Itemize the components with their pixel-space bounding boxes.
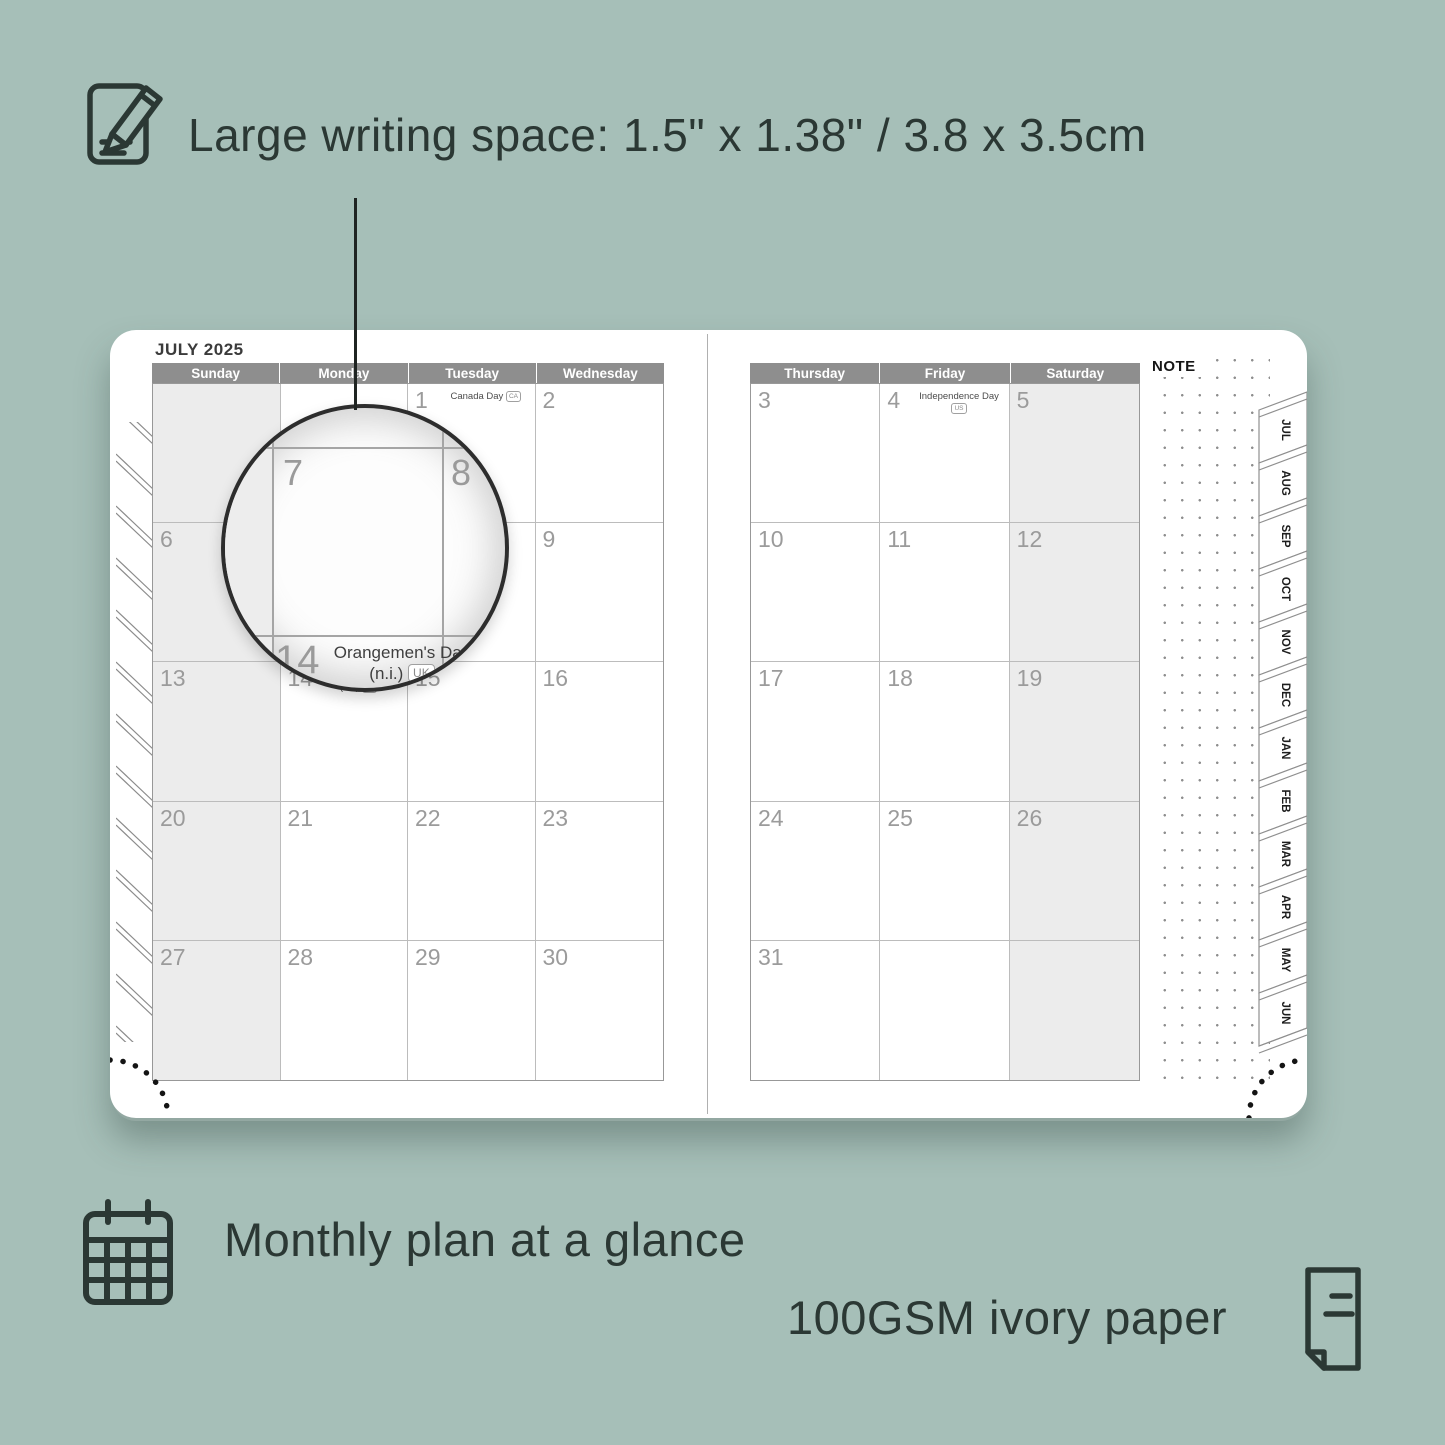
magnifier-circle: 7 8 14 Orangemen's Day (n.i.) UK	[221, 404, 509, 692]
paper-sheet-icon	[1272, 1262, 1372, 1378]
magnified-date: 8	[451, 452, 471, 494]
pencil-notepad-icon	[80, 72, 180, 172]
magnified-holiday-label: Orangemen's Day (n.i.) UK	[317, 642, 487, 685]
writing-space-caption: Large writing space: 1.5" x 1.38" / 3.8 …	[188, 108, 1147, 162]
calendar-icon	[78, 1196, 178, 1312]
magnified-date: 14	[275, 638, 320, 683]
country-badge: UK	[408, 664, 435, 682]
monthly-plan-caption: Monthly plan at a glance	[224, 1212, 746, 1267]
magnified-grid-line	[225, 447, 505, 449]
magnified-date: 7	[283, 452, 303, 494]
paper-caption: 100GSM ivory paper	[787, 1290, 1227, 1345]
planner-spread: JULY 2025 SundayMondayTuesdayWednesday 1…	[110, 330, 1307, 1118]
magnified-sunday-column	[225, 408, 272, 688]
magnified-grid-line	[225, 635, 505, 637]
magnified-grid-line	[272, 408, 274, 688]
callout-pointer-line	[354, 198, 357, 410]
